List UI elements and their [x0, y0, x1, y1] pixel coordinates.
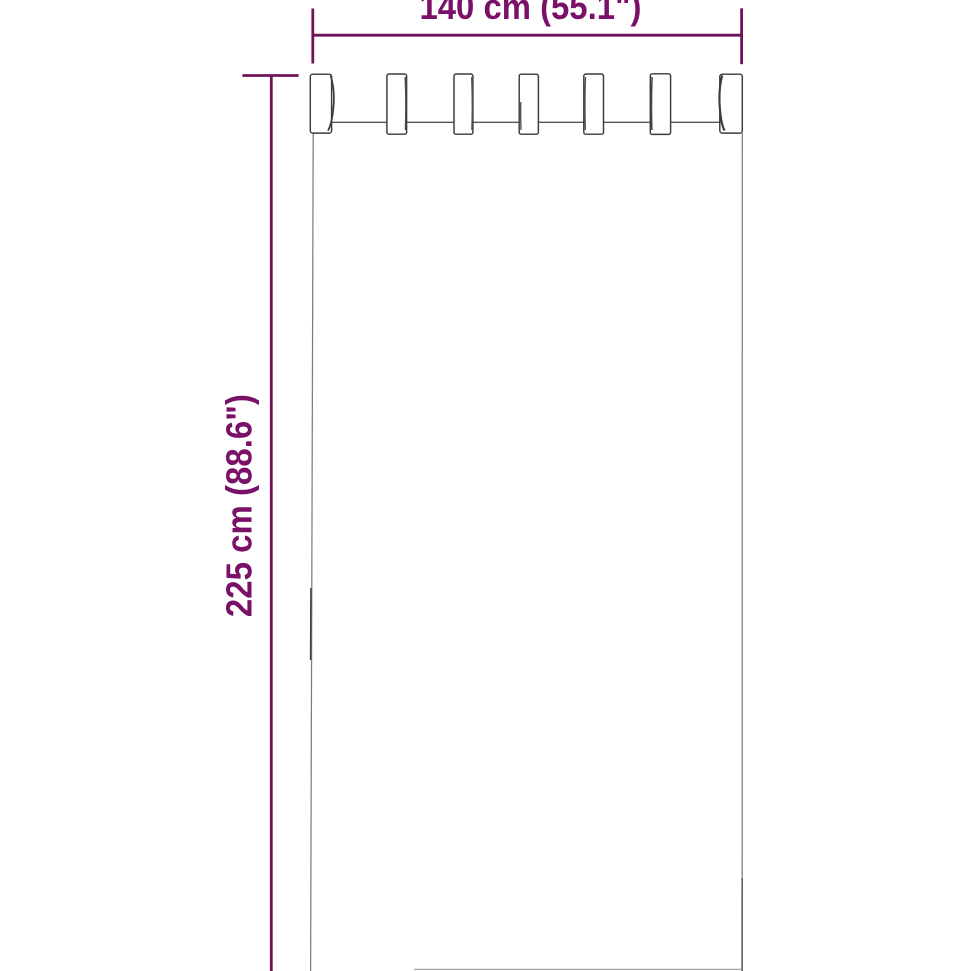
svg-text:225 cm (88.6"): 225 cm (88.6"): [219, 394, 260, 617]
svg-text:140 cm (55.1"): 140 cm (55.1"): [420, 0, 642, 27]
